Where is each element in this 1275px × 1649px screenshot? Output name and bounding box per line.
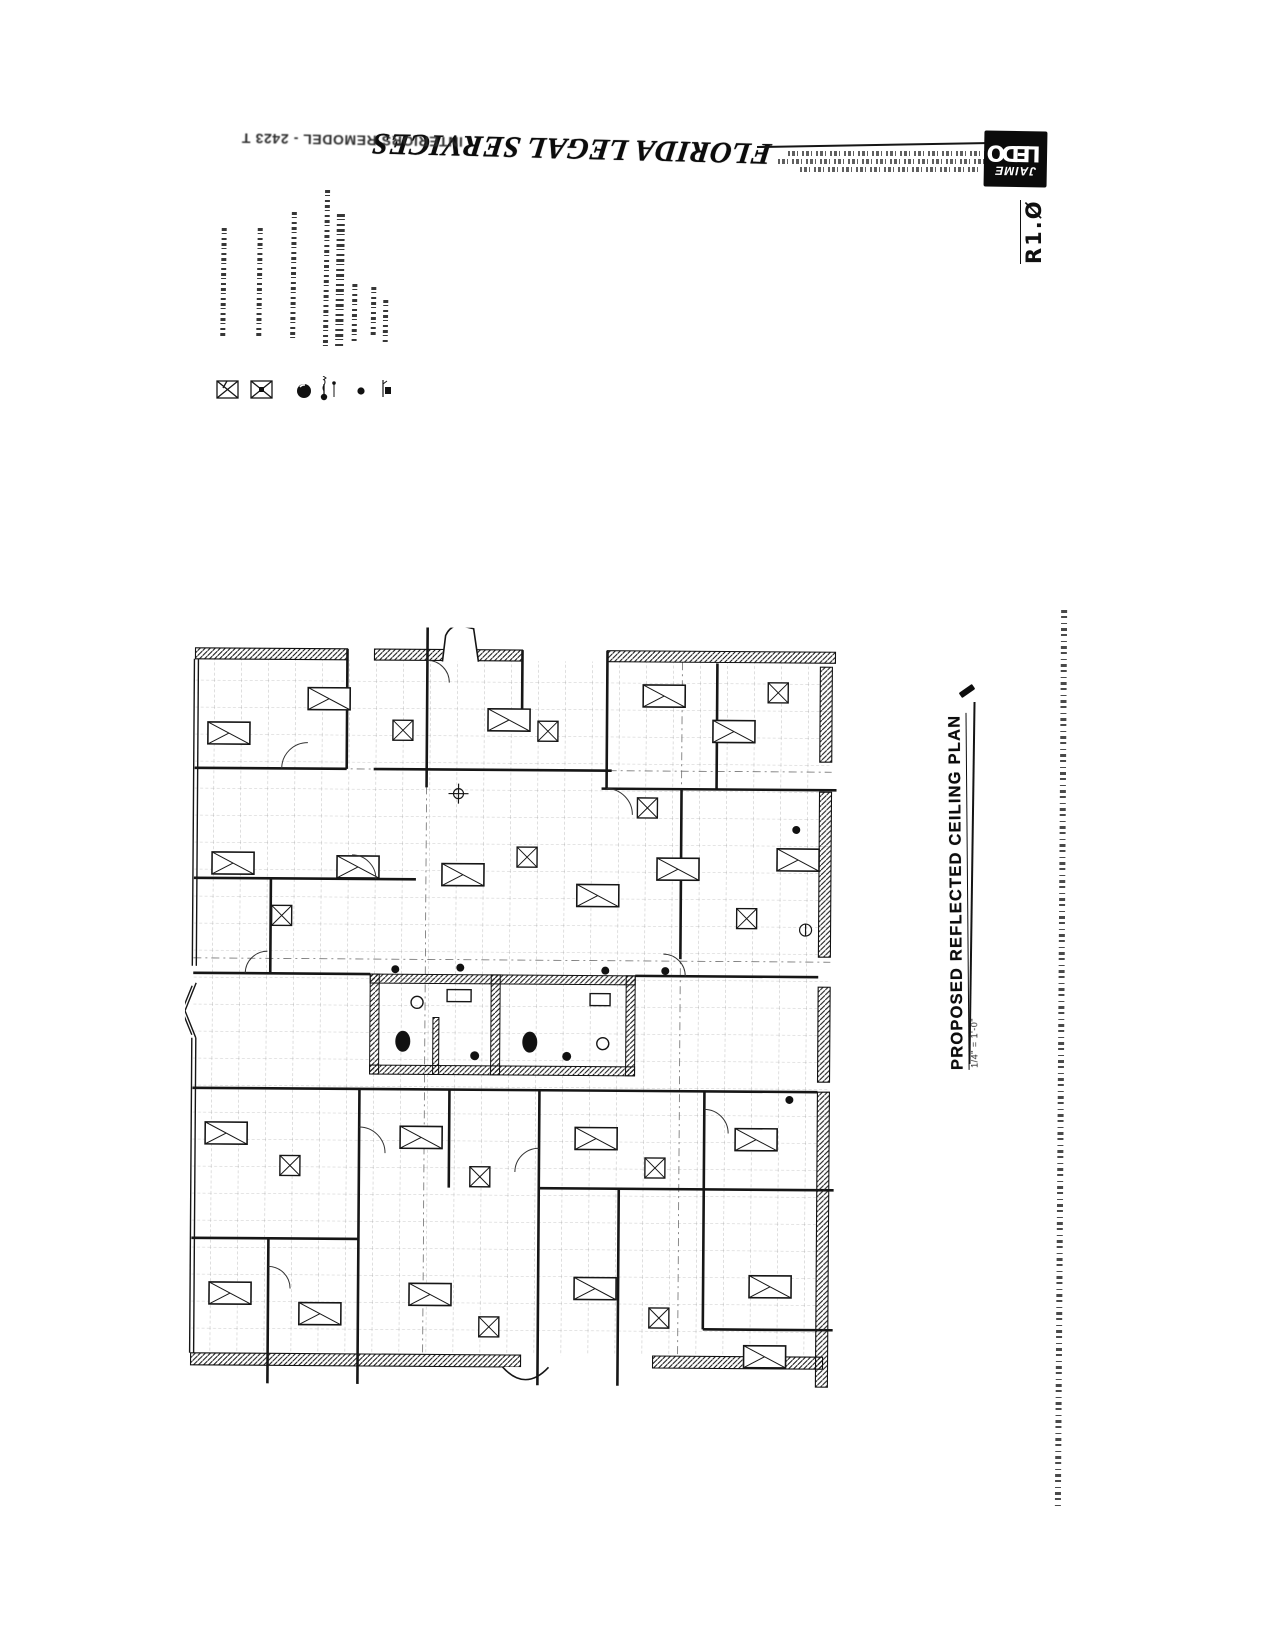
architect-info-line <box>800 167 982 172</box>
general-notes-column <box>352 284 358 342</box>
fixture-2x2-troffer-icon <box>217 381 238 398</box>
ceiling-dot-icon <box>357 387 364 394</box>
bottom-bay <box>502 1367 548 1380</box>
general-notes-column <box>383 300 389 342</box>
architect-logo: JAIME LEDO <box>984 130 1048 187</box>
architect-info-line <box>788 151 990 156</box>
scanned-drawing-sheet: FLORIDA LEGAL SERVICES INTERIORS REMODEL… <box>0 0 1275 1649</box>
general-notes-column <box>290 212 297 338</box>
logo-text-top: JAIME <box>994 165 1036 178</box>
general-notes-column <box>335 214 345 348</box>
titleblock-rule <box>757 142 991 148</box>
general-notes-column <box>323 190 330 346</box>
downlight-icon <box>297 384 311 398</box>
project-subtitle: INTERIORS REMODEL - 2423 T <box>205 116 463 150</box>
ceiling-grid <box>191 659 833 1357</box>
sprinkler-head-icon <box>383 380 391 397</box>
entry-bay <box>442 626 478 662</box>
architect-info-line <box>778 159 990 164</box>
ceiling-plan-drawing <box>182 626 837 1396</box>
sheet-number: R1.Ø <box>1020 200 1048 264</box>
general-notes-column <box>371 287 377 335</box>
fixture-2x2-troffer-dot-icon <box>251 381 272 398</box>
general-notes-column <box>220 228 227 336</box>
general-notes-column <box>256 228 263 338</box>
title-leader-arrowhead <box>959 684 976 698</box>
logo-text-bottom: LEDO <box>990 141 1040 164</box>
exit-light-icon <box>321 376 336 400</box>
margin-note-column <box>1055 610 1067 1510</box>
ceiling-legend <box>203 376 408 404</box>
project-title: FLORIDA LEGAL SERVICES <box>449 116 775 170</box>
